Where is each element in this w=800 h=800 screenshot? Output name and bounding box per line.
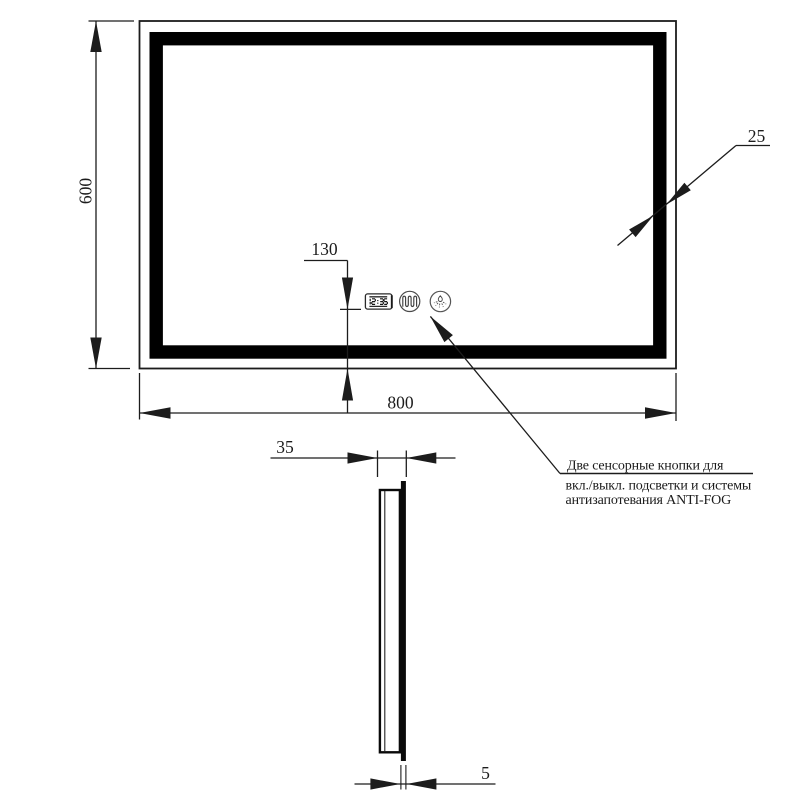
svg-text:600: 600	[76, 178, 96, 205]
svg-text:130: 130	[311, 239, 338, 259]
svg-text:вкл./выкл. подсветки и системы: вкл./выкл. подсветки и системы	[566, 479, 752, 494]
svg-text:Две сенсорные кнопки для: Две сенсорные кнопки для	[567, 459, 724, 474]
svg-text:35: 35	[276, 437, 294, 457]
svg-text:25: 25	[748, 126, 766, 146]
svg-text:антизапотевания ANTI-FOG: антизапотевания ANTI-FOG	[566, 493, 732, 508]
svg-text:5: 5	[481, 763, 490, 783]
svg-text:800: 800	[387, 393, 414, 413]
